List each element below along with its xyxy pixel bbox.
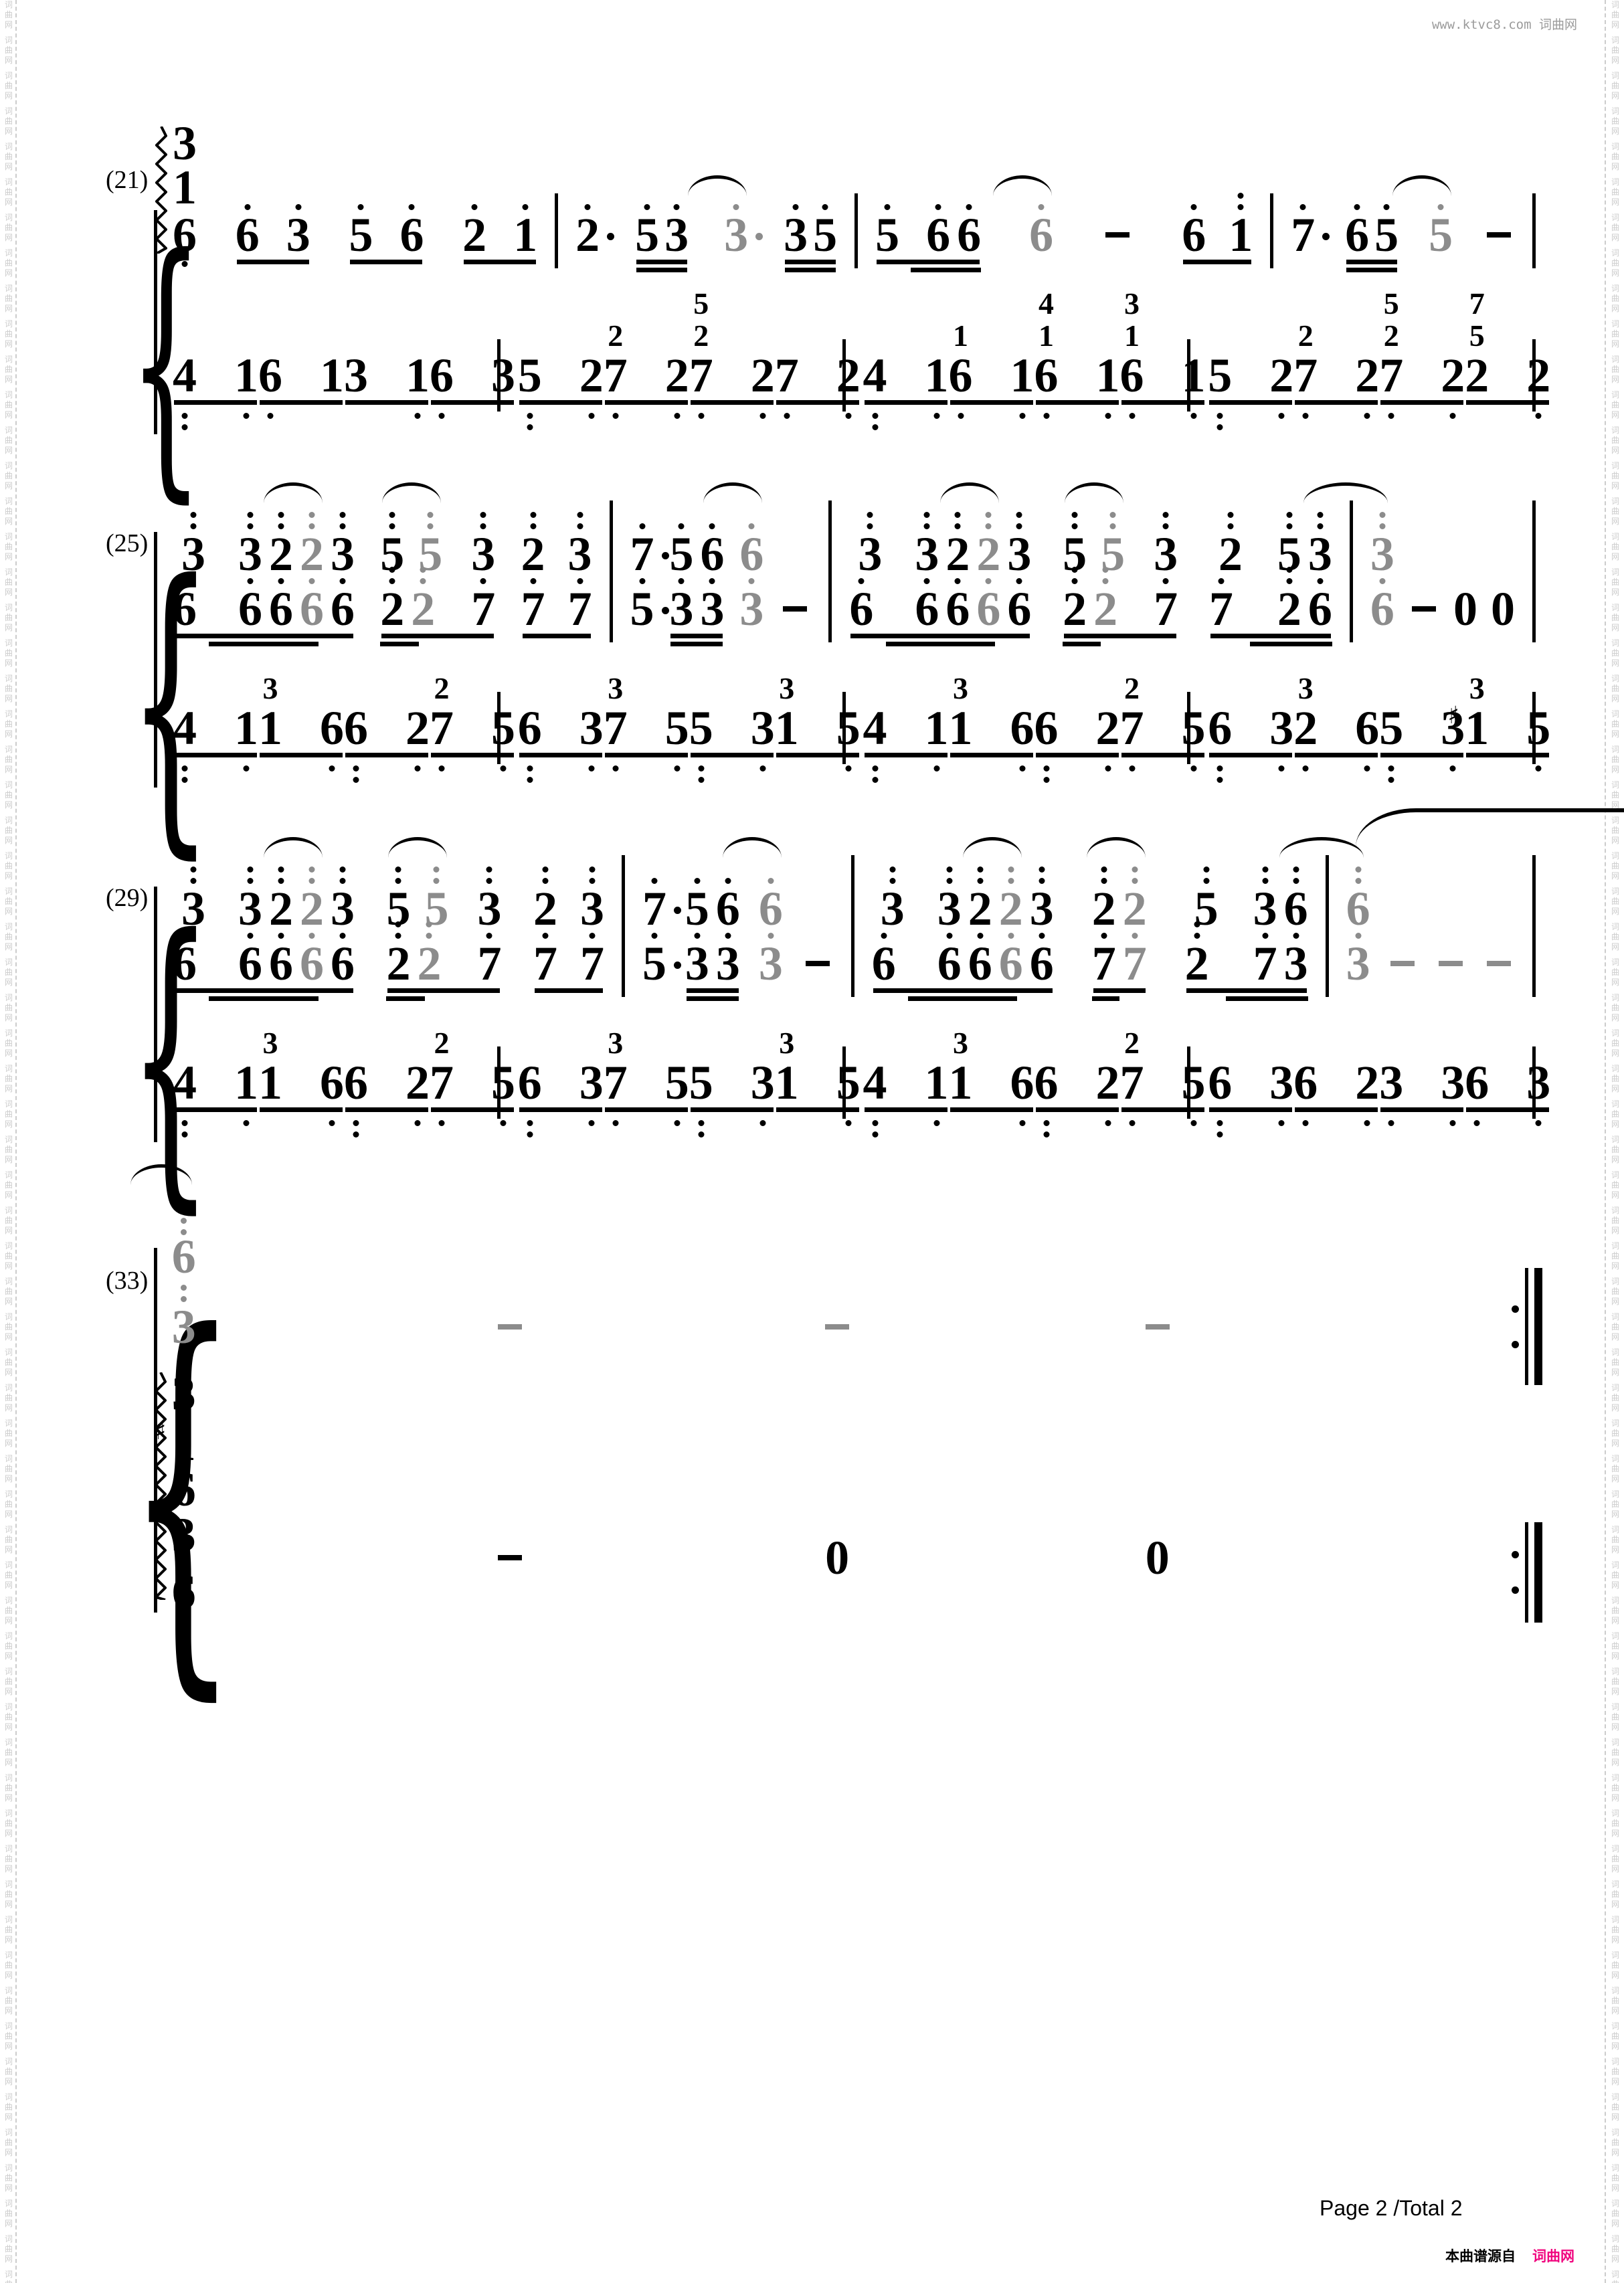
measure: 75536363 [613, 535, 829, 628]
above-stack [1300, 201, 1306, 213]
watermark-characters: 词曲网 [2, 1419, 15, 1449]
note-digit: 6 [1208, 1064, 1232, 1101]
octave-dot [1355, 866, 1361, 873]
beam [350, 260, 422, 264]
above-stack: 2 [434, 674, 450, 706]
note-digit: 3 [331, 535, 355, 573]
note-digit: 1 [258, 709, 282, 747]
watermark-characters: 词曲网 [2, 284, 15, 314]
beam [687, 996, 739, 1001]
note-token: 3 [580, 890, 604, 927]
note-token: 416 [1034, 357, 1059, 394]
note-digit: 2 [405, 1064, 430, 1101]
above-stack [530, 509, 536, 532]
note-digit: 2 [665, 357, 689, 394]
note-token: 2 [300, 890, 324, 927]
note-token: 6 [1010, 1064, 1034, 1101]
above-stack [986, 509, 992, 532]
note-digit: 2 [411, 590, 435, 628]
below-stack [353, 1117, 359, 1140]
note-digit: 3 [759, 945, 783, 982]
octave-dot [340, 878, 346, 884]
octave-dot [353, 1131, 359, 1137]
note-digit: 6 [1034, 709, 1059, 747]
below-stack [588, 1117, 594, 1129]
above-stack [977, 930, 983, 941]
held-note-dash [783, 606, 807, 612]
below-stack [244, 410, 250, 422]
octave-dot [1262, 933, 1268, 939]
beam-group: 2 [575, 216, 600, 254]
octave-dot [1217, 777, 1223, 783]
octave-dot [1450, 1120, 1456, 1126]
tie-arc-icon [703, 482, 762, 503]
octave-dot [248, 512, 254, 518]
note-token [1101, 216, 1134, 254]
watermark-characters: 词曲网 [1609, 887, 1622, 917]
harmony-digit: 1 [1124, 321, 1140, 351]
beam [1092, 996, 1119, 1001]
note-digit: 3 [471, 535, 495, 573]
above-stack: 3 [608, 674, 623, 706]
octave-dot [1043, 1120, 1049, 1126]
note-token: 2 [1092, 890, 1116, 927]
note-digit: 5 [518, 357, 542, 394]
watermark-characters: 词曲网 [1609, 1064, 1622, 1094]
watermark-characters: 词曲网 [2, 1773, 15, 1803]
below-stack [1019, 1117, 1025, 1129]
note-token: 6 [1034, 1064, 1059, 1101]
watermark-characters: 词曲网 [2, 1064, 15, 1094]
octave-dot [182, 777, 188, 783]
above-stack: 1 [953, 321, 968, 353]
note-digit: 3 [579, 709, 604, 747]
note-digit: 2 [462, 216, 486, 254]
note-digit: 5 [1374, 216, 1399, 254]
octave-dot [181, 1218, 187, 1224]
watermark-characters: 词曲网 [1609, 2234, 1622, 2264]
note-digit: 6 [926, 216, 950, 254]
note-digit: 7 [1154, 590, 1178, 628]
above-stack [480, 509, 486, 532]
above-stack [309, 575, 315, 587]
note-token: 5 [1208, 357, 1232, 394]
octave-dot [845, 765, 851, 771]
harmony-digit: 3 [953, 1028, 968, 1058]
note-digit: 1 [513, 216, 537, 254]
measure-number-label: (21) [106, 167, 148, 193]
harmony-digit: 3 [1124, 289, 1140, 318]
below-stack [1129, 763, 1135, 774]
note-token: 7 [1291, 216, 1315, 254]
note-token: 6 [1208, 1064, 1232, 1101]
note-digit: 5 [875, 216, 899, 254]
note-digit: 6 [1030, 945, 1054, 982]
note-digit: 3 [1253, 890, 1277, 927]
beam [776, 400, 859, 405]
beam [691, 753, 774, 757]
above-stack [1072, 509, 1078, 532]
note-digit: 1 [405, 357, 430, 394]
note-digit: 2 [300, 535, 324, 573]
beam-group: 62 [1293, 1064, 1379, 1101]
octave-dot [1379, 512, 1385, 518]
octave-dot [486, 933, 492, 939]
note-token: 3 [915, 535, 939, 573]
voice-column: 26 [269, 890, 293, 982]
note-digit: 7 [430, 1064, 454, 1101]
octave-dot [182, 261, 188, 267]
above-stack [182, 930, 188, 941]
octave-dot [924, 512, 930, 518]
note-digit: 6 [269, 590, 293, 628]
octave-dot [977, 878, 983, 884]
note-digit: 6 [173, 590, 197, 628]
beam-group: 5272 [1379, 357, 1465, 394]
beam-group: 2737 [521, 535, 592, 628]
note-token: 6 [872, 945, 896, 982]
note-token: 6 [238, 945, 262, 982]
note-digit: 7 [1379, 357, 1403, 394]
note-digit: 6 [700, 535, 724, 573]
octave-dot [530, 512, 536, 518]
note-digit: 6 [173, 216, 197, 254]
beam-group [779, 590, 811, 628]
note-digit: 1 [1010, 357, 1034, 394]
note-token: 4 [863, 709, 887, 747]
note-token: 5 [665, 709, 689, 747]
note-digit: 3 [1346, 945, 1370, 982]
above-stack [191, 864, 197, 887]
note-digit: 3 [1526, 1064, 1550, 1101]
note-token: 4 [863, 357, 887, 394]
note-token: 3 [286, 216, 310, 254]
above-stack [1039, 201, 1045, 213]
note-token: 1 [1182, 357, 1206, 394]
above-stack [768, 875, 774, 887]
held-note-dash [1439, 961, 1463, 966]
harmony-digit: 3 [1298, 674, 1314, 703]
watermark-characters: 词曲网 [2, 2234, 15, 2264]
note-token: 63 [172, 1308, 196, 1346]
beam-group: 525237 [1063, 535, 1178, 628]
note-token: 3 [1284, 945, 1308, 982]
note-token: 27 [430, 709, 454, 747]
tie-arc-icon [1065, 482, 1123, 503]
repeat-barline [1512, 1268, 1542, 1385]
beam [950, 400, 1033, 405]
below-stack [329, 1117, 335, 1129]
note-token: 5 [1379, 709, 1403, 747]
octave-dot [759, 765, 765, 771]
octave-dot [1105, 1120, 1111, 1126]
note-token: 6 [300, 590, 324, 628]
above-stack [679, 521, 685, 532]
beam [1209, 753, 1292, 757]
note-token: 37 [604, 1064, 628, 1101]
beam-group: 72 [775, 357, 861, 394]
octave-dot [486, 866, 492, 873]
watermark-characters: 词曲网 [1609, 35, 1622, 66]
note-token: 6 [430, 357, 454, 394]
octave-dot [1203, 878, 1209, 884]
note-token: 31 [258, 1064, 282, 1101]
below-stack [1105, 763, 1111, 774]
beam-group: 315 [775, 1064, 861, 1101]
note-digit: 5 [1379, 709, 1403, 747]
octave-dot [698, 777, 704, 783]
note-token: 7 [471, 590, 495, 628]
note-digit: 4 [863, 357, 887, 394]
below-stack [439, 763, 445, 774]
beam [776, 753, 859, 757]
above-stack [1355, 930, 1361, 941]
octave-dot [542, 866, 548, 873]
octave-dot [1016, 512, 1022, 518]
note-digit: 2 [521, 535, 545, 573]
note-digit: 7 [604, 357, 628, 394]
above-stack [1379, 509, 1385, 532]
octave-dot [480, 578, 486, 584]
measure: 36362626365252372737 [155, 890, 622, 982]
beam [386, 996, 424, 1001]
watermark-characters: 词曲网 [1609, 1631, 1622, 1661]
beam-group: 375 [604, 1064, 689, 1101]
note-digit: 1♯ [172, 1425, 196, 1463]
note-token: 1 [925, 1064, 949, 1101]
above-stack [1438, 201, 1444, 213]
octave-dot [1303, 413, 1309, 419]
harmony-digit: 3 [263, 674, 278, 703]
beam-group: 161 [949, 357, 1034, 394]
watermark-characters: 词曲网 [1609, 177, 1622, 207]
octave-dot [759, 1120, 765, 1126]
octave-dot [889, 878, 895, 884]
note-token: 1 [320, 357, 344, 394]
above-stack [694, 930, 700, 941]
watermark-characters: 词曲网 [1609, 922, 1622, 952]
octave-dot [395, 866, 401, 873]
above-stack [935, 201, 941, 213]
octave-dot [872, 777, 878, 783]
note-digit: 1 [258, 1064, 282, 1101]
beam-group: 316 [949, 1064, 1034, 1101]
above-stack: 2 [1298, 321, 1314, 353]
measure: 4116141613161 [846, 357, 1188, 394]
octave-dot [530, 523, 536, 529]
voice-column: 36 [173, 890, 214, 982]
above-stack [889, 864, 895, 887]
beam [387, 988, 500, 993]
beam-group: 326 [1293, 709, 1379, 747]
note-token: 3 [344, 357, 368, 394]
watermark-characters: 词曲网 [1609, 1525, 1622, 1555]
below-stack [698, 763, 704, 786]
beam-group: 75 [642, 890, 666, 982]
beam-group: 3636262636 [173, 890, 355, 982]
beam-group: 275 [430, 709, 515, 747]
free-token: 63 [172, 1308, 196, 1346]
note-token: 5 [635, 216, 659, 254]
octave-dot [480, 512, 486, 518]
beam-group: 41 [173, 1064, 258, 1101]
note-digit: 5 [635, 216, 659, 254]
free-token: 0 [1146, 1539, 1170, 1576]
note-digit: 2 [1096, 709, 1120, 747]
note-token: 6 [999, 945, 1023, 982]
beam [1295, 400, 1378, 405]
tie-arc-icon [688, 175, 747, 196]
above-stack [278, 509, 284, 532]
note-token: 5 [1374, 216, 1399, 254]
harmony-digit: 3 [608, 1028, 623, 1058]
below-stack [1019, 763, 1025, 774]
measure: 5227252727522 [1190, 357, 1532, 394]
above-stack [709, 521, 715, 532]
note-token: 31♯ [1465, 709, 1489, 747]
note-token: 2 [579, 357, 604, 394]
octave-dot [420, 578, 426, 584]
watermark-characters: 词曲网 [1609, 1312, 1622, 1342]
note-token: 6 [1007, 590, 1031, 628]
below-stack [527, 1117, 533, 1140]
note-token: 6 [300, 945, 324, 982]
note-digit: 5 [665, 1064, 689, 1101]
note-token: 3 [1441, 1064, 1465, 1101]
voice-column: 26 [968, 890, 992, 982]
harmony-digit: 5 [693, 289, 709, 318]
octave-dot [329, 1120, 335, 1126]
note-digit: 6 [1029, 216, 1053, 254]
watermark-characters: 词曲网 [2, 1454, 15, 1484]
note-token: 4 [173, 1064, 197, 1101]
octave-dot [434, 878, 440, 884]
watermark-characters: 词曲网 [1609, 213, 1622, 243]
note-digit: 7 [471, 590, 495, 628]
octave-dot [1438, 204, 1444, 210]
octave-dot [845, 1120, 851, 1126]
above-stack [924, 575, 930, 587]
note-token: 6 [739, 535, 763, 573]
note-digit: 3 [1154, 535, 1178, 573]
note-token: 2 [269, 535, 293, 573]
octave-dot [1293, 866, 1299, 873]
octave-dot [986, 578, 992, 584]
beam-group: 53 [689, 1064, 775, 1101]
above-stack [679, 575, 685, 587]
note-digit: 3 [858, 535, 882, 573]
beam-group: 0 [1453, 590, 1477, 628]
above-stack [340, 864, 346, 887]
note-digit: 2 [968, 890, 992, 927]
octave-dot [1039, 933, 1045, 939]
octave-dot [542, 933, 548, 939]
below-stack [1279, 763, 1285, 774]
voice-column: 75 [642, 890, 666, 982]
below-stack [1279, 1117, 1285, 1129]
below-stack [1043, 1117, 1049, 1140]
note-token: 27 [430, 1064, 454, 1101]
octave-dot [415, 765, 421, 771]
below-stack [1105, 410, 1111, 422]
note-token: 2 [269, 890, 293, 927]
beam [1380, 1107, 1463, 1112]
below-stack [1105, 1117, 1111, 1129]
note-token: 6 [957, 216, 981, 254]
staff-row: 3636262636525237273775536363363626263627… [155, 890, 1536, 982]
source-note: 本曲谱源自 [1445, 2248, 1516, 2265]
octave-dot [1379, 578, 1385, 584]
note-token: 3 [1007, 535, 1031, 573]
above-stack [1132, 864, 1138, 887]
note-digit: 6 [1346, 890, 1370, 927]
below-stack [1129, 410, 1135, 422]
beam [1466, 400, 1549, 405]
note-digit: 5 [813, 216, 837, 254]
staff-row: 4161316352272527272411614161316152272527… [155, 357, 1536, 394]
above-stack [1317, 575, 1323, 587]
staff-row: 3166356212533355666617655 [155, 216, 1536, 254]
octave-dot [1043, 413, 1049, 419]
note-token: 3 [238, 890, 262, 927]
octave-dot [1101, 866, 1107, 873]
below-stack [612, 1117, 618, 1129]
note-digit: 5 [836, 1064, 861, 1101]
below-stack [674, 1117, 680, 1129]
watermark-characters: 词曲网 [2, 1383, 15, 1413]
watermark-characters: 词曲网 [1609, 71, 1622, 101]
octave-dot [527, 1120, 533, 1126]
octave-dot [1016, 523, 1022, 529]
octave-dot [182, 765, 188, 771]
note-digit: 2 [1092, 890, 1116, 927]
above-stack [768, 930, 774, 941]
note-digit: 5 [491, 1064, 515, 1101]
watermark-characters: 词曲网 [2, 1596, 15, 1626]
watermark-characters: 词曲网 [1609, 1986, 1622, 2016]
note-token: 3 [477, 890, 501, 927]
voice-column: 53 [669, 535, 693, 628]
note-digit: 3 [491, 357, 515, 394]
above-stack [966, 201, 972, 213]
note-token: 5 [518, 357, 542, 394]
watermark-characters: 词曲网 [1609, 142, 1622, 172]
octave-dot [1190, 765, 1196, 771]
below-stack [415, 763, 421, 774]
beam [1093, 988, 1146, 993]
octave-dot [1105, 413, 1111, 419]
octave-dot [1043, 777, 1049, 783]
beam [1121, 1107, 1204, 1112]
free-token [1142, 1308, 1174, 1346]
below-stack [439, 410, 445, 422]
note-token [821, 1324, 853, 1330]
note-digit: 6 [236, 216, 260, 254]
above-stack [340, 509, 346, 532]
below-stack [244, 1117, 250, 1129]
octave-dot [472, 204, 478, 210]
barline [1532, 500, 1536, 642]
above-stack [409, 201, 415, 213]
beam [1063, 642, 1101, 646]
above-stack [434, 864, 440, 887]
free-token [494, 1539, 526, 1576]
beam-group: 62 [1034, 1064, 1120, 1101]
octave-dot [946, 866, 952, 873]
watermark-characters: 词曲网 [2, 106, 15, 136]
beam-group [1483, 216, 1515, 254]
beam [431, 753, 514, 757]
